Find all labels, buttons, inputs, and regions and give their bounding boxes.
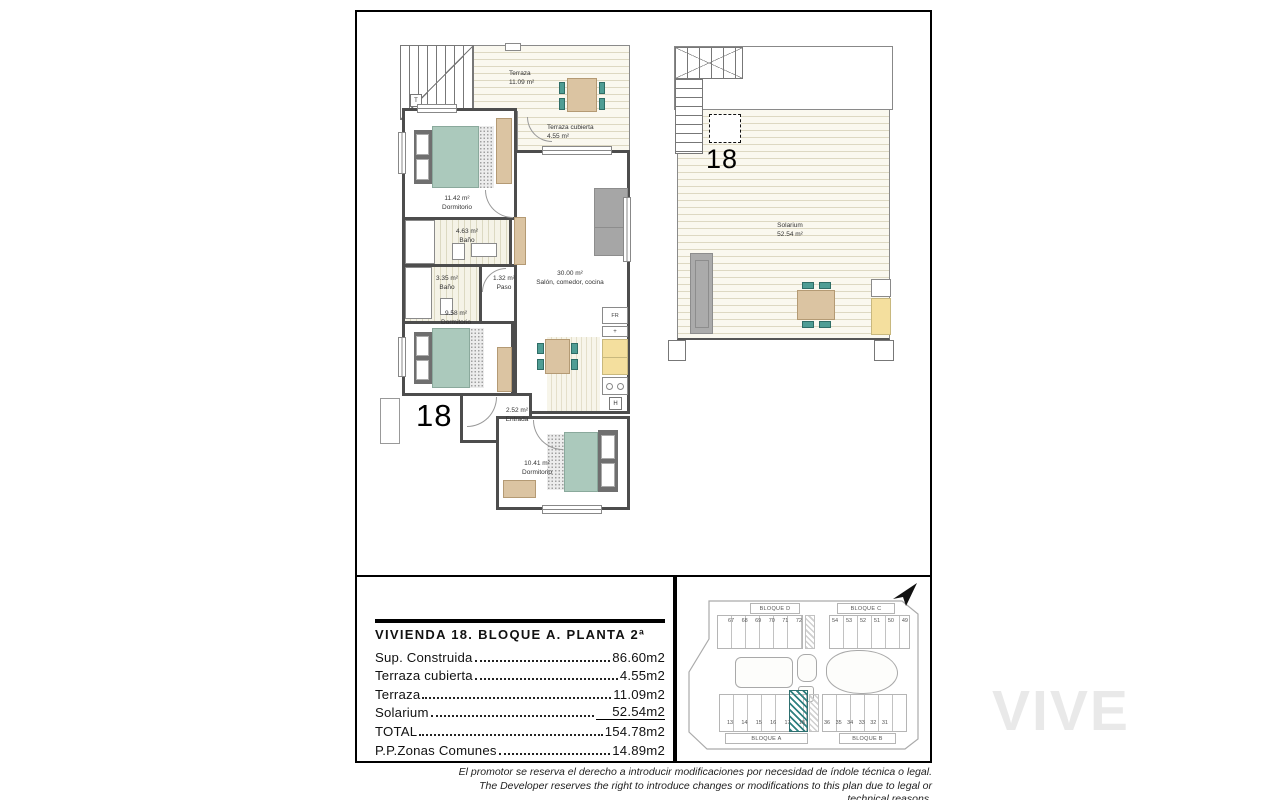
room-label-entrada: 2.52 m² Entrada bbox=[506, 407, 529, 425]
dining-chair bbox=[571, 343, 578, 354]
pillow bbox=[416, 159, 429, 180]
row-label: Solarium bbox=[375, 705, 429, 720]
room-label-dormitorio-1: 11.42 m² Dormitorio bbox=[442, 195, 472, 213]
unit-number: 49 bbox=[902, 618, 908, 624]
kitchen-sink bbox=[602, 377, 628, 395]
window bbox=[398, 132, 406, 174]
plan-sheet: T bbox=[0, 0, 1280, 800]
dot-leader bbox=[419, 734, 602, 736]
unit-number: 17 bbox=[785, 720, 791, 726]
unit-number: 51 bbox=[874, 618, 880, 624]
stair-opening-dashed bbox=[709, 114, 741, 143]
room-area: 4.55 m² bbox=[547, 133, 594, 142]
unit-number: 54 bbox=[832, 618, 838, 624]
entry-porch bbox=[380, 398, 400, 444]
bed bbox=[432, 126, 479, 188]
summary-row: P.P.Zonas Comunes 14.89m2 bbox=[375, 739, 665, 758]
summary-row: Sup. Construida 86.60m2 bbox=[375, 646, 665, 665]
room-label-dormitorio-2: 9.58 m² Dormitorio bbox=[441, 310, 471, 328]
unit-number: 71 bbox=[782, 618, 788, 624]
housing-strip-b bbox=[822, 694, 907, 732]
unit-number: 68 bbox=[742, 618, 748, 624]
block-name: BLOQUE B bbox=[852, 736, 883, 742]
bed bbox=[564, 432, 598, 492]
brand-watermark: VIVE bbox=[992, 678, 1130, 744]
toilet bbox=[452, 243, 465, 260]
row-label: P.P.Zonas Comunes bbox=[375, 743, 497, 758]
row-label: Sup. Construida bbox=[375, 650, 473, 665]
room-name: Solarium bbox=[777, 222, 803, 231]
solarium-chair bbox=[819, 282, 831, 289]
room-name: Dormitorio bbox=[522, 469, 552, 478]
shower bbox=[405, 220, 435, 264]
dot-leader bbox=[499, 753, 611, 755]
block-label-d: BLOQUE D bbox=[750, 603, 800, 614]
pillow bbox=[601, 463, 615, 487]
wardrobe bbox=[496, 118, 512, 184]
block-label-c: BLOQUE C bbox=[837, 603, 895, 614]
solarium-chair bbox=[819, 321, 831, 328]
footing bbox=[668, 340, 686, 361]
row-value: 154.78m2 bbox=[605, 724, 665, 739]
bed bbox=[432, 328, 470, 388]
window bbox=[542, 505, 602, 514]
fridge-label: FR bbox=[611, 313, 618, 319]
bed-runner bbox=[479, 126, 494, 188]
walkway bbox=[805, 615, 815, 649]
sink-bowl bbox=[617, 383, 624, 390]
row-value: 52.54m2 bbox=[596, 704, 665, 720]
terrace-chair bbox=[559, 98, 565, 110]
unit-numbers-b: 36 35 34 33 32 31 bbox=[824, 720, 888, 726]
summary-row: Terraza 11.09m2 bbox=[375, 683, 665, 702]
row-value: 86.60m2 bbox=[612, 650, 665, 665]
room-label-terraza-cubierta: Terraza cubierta 4.55 m² bbox=[547, 124, 594, 142]
room-area: 3.35 m² bbox=[436, 275, 458, 284]
wardrobe bbox=[497, 347, 512, 392]
dot-leader bbox=[431, 715, 595, 717]
summary-panel: VIVIENDA 18. BLOQUE A. PLANTA 2ª Sup. Co… bbox=[355, 575, 675, 763]
room-label-terraza: Terraza 11.09 m² bbox=[509, 70, 534, 88]
title-rule bbox=[375, 619, 665, 623]
unit-number: 67 bbox=[728, 618, 734, 624]
room-label-paso: 1.32 m² Paso bbox=[493, 275, 515, 293]
room-area: 11.09 m² bbox=[509, 79, 534, 88]
floor-plans-panel: T bbox=[355, 10, 932, 577]
dot-leader bbox=[422, 697, 611, 699]
unit-numbers-d: 67 68 69 70 71 72 bbox=[728, 618, 802, 624]
unit-number: 34 bbox=[847, 720, 853, 726]
bed-headboard bbox=[598, 430, 618, 492]
room-name: Entrada bbox=[506, 416, 529, 425]
solarium-chair bbox=[802, 321, 814, 328]
site-plan-panel: BLOQUE D BLOQUE C 67 68 69 70 71 72 54 5… bbox=[675, 575, 932, 763]
room-area: 2.52 m² bbox=[506, 407, 529, 416]
room-name: Paso bbox=[493, 284, 515, 293]
unit-number: 35 bbox=[836, 720, 842, 726]
row-value: 4.55m2 bbox=[620, 668, 665, 683]
room-area: 30.00 m² bbox=[536, 270, 604, 279]
kitchen-cabinet bbox=[602, 339, 628, 375]
disclaimer-line-es: El promotor se reserva el derecho a intr… bbox=[455, 766, 932, 780]
row-value: 14.89m2 bbox=[612, 743, 665, 758]
room-area: 10.41 m² bbox=[522, 460, 552, 469]
room-area: 11.42 m² bbox=[442, 195, 472, 204]
footing bbox=[874, 340, 894, 361]
block-name: BLOQUE D bbox=[760, 606, 791, 612]
room-name: Salón, comedor, cocina bbox=[536, 279, 604, 288]
row-label: Terraza bbox=[375, 687, 420, 702]
summary-row: TOTAL 154.78m2 bbox=[375, 720, 665, 739]
solarium-chair bbox=[802, 282, 814, 289]
pillow bbox=[416, 336, 429, 356]
summary-row: Solarium 52.54m2 bbox=[375, 702, 665, 721]
unit-number: 36 bbox=[824, 720, 830, 726]
block-name: BLOQUE C bbox=[851, 606, 882, 612]
room-area: 52.54 m² bbox=[777, 231, 803, 240]
kitchen-counter: + bbox=[602, 326, 628, 337]
dining-chair bbox=[537, 343, 544, 354]
room-area: 1.32 m² bbox=[493, 275, 515, 284]
room-label-solarium: Solarium 52.54 m² bbox=[777, 222, 803, 240]
block-label-b: BLOQUE B bbox=[839, 733, 896, 744]
unit-number: 53 bbox=[846, 618, 852, 624]
solarium-stair-run bbox=[675, 79, 703, 154]
unit-number: 14 bbox=[741, 720, 747, 726]
solarium-cabinet bbox=[871, 298, 891, 335]
unit-number: 18 bbox=[799, 720, 805, 726]
unit-number: 32 bbox=[870, 720, 876, 726]
bed-headboard bbox=[414, 130, 432, 184]
water-heater-label: H bbox=[613, 401, 617, 407]
water-heater: H bbox=[609, 397, 622, 410]
summary-row: Terraza cubierta 4.55m2 bbox=[375, 665, 665, 684]
unit-number: 31 bbox=[882, 720, 888, 726]
summary-title: VIVIENDA 18. BLOQUE A. PLANTA 2ª bbox=[375, 627, 645, 642]
cabinet-divider bbox=[603, 357, 628, 358]
room-area: 9.58 m² bbox=[441, 310, 471, 319]
room-name: Baño bbox=[436, 284, 458, 293]
pillow bbox=[416, 360, 429, 380]
unit-number: 52 bbox=[860, 618, 866, 624]
north-arrow-icon bbox=[893, 583, 919, 607]
shower bbox=[405, 267, 432, 319]
unit-number: 15 bbox=[756, 720, 762, 726]
terrace-chair bbox=[559, 82, 565, 94]
room-name: Terraza bbox=[509, 70, 534, 79]
room-area: 4.63 m² bbox=[456, 228, 478, 237]
unit-number-main: 18 bbox=[416, 398, 452, 434]
row-label: Terraza cubierta bbox=[375, 668, 473, 683]
block-name: BLOQUE A bbox=[751, 736, 781, 742]
unit-number: 13 bbox=[727, 720, 733, 726]
room-name: Dormitorio bbox=[442, 204, 472, 213]
unit-number: 70 bbox=[769, 618, 775, 624]
bed-runner bbox=[470, 328, 484, 388]
cabinet bbox=[514, 217, 526, 265]
room-name: Terraza cubierta bbox=[547, 124, 594, 133]
terrace-notch bbox=[505, 43, 521, 51]
room-label-dormitorio-3: 10.41 m² Dormitorio bbox=[522, 460, 552, 478]
window bbox=[417, 104, 457, 113]
window bbox=[542, 146, 612, 155]
stair-tag-label: T bbox=[414, 98, 418, 104]
lounger-inner bbox=[695, 260, 709, 328]
walkway bbox=[809, 694, 819, 732]
room-label-salon: 30.00 m² Salón, comedor, cocina bbox=[536, 270, 604, 288]
row-label: TOTAL bbox=[375, 724, 417, 739]
solarium-stair-winder bbox=[675, 47, 743, 79]
row-value: 11.09m2 bbox=[613, 687, 665, 702]
bed-headboard bbox=[414, 332, 432, 384]
terrace-table bbox=[567, 78, 597, 112]
room-label-bano-1: 4.63 m² Baño bbox=[456, 228, 478, 246]
pillow bbox=[601, 435, 615, 459]
window bbox=[398, 337, 406, 377]
room-name: Baño bbox=[456, 237, 478, 246]
unit-number: 72 bbox=[796, 618, 802, 624]
wardrobe bbox=[503, 480, 536, 498]
dot-leader bbox=[475, 678, 618, 680]
unit-numbers-a: 13 14 15 16 17 18 bbox=[727, 720, 805, 726]
pool bbox=[735, 657, 793, 688]
unit-number: 33 bbox=[859, 720, 865, 726]
disclaimer-line-en: The Developer reserves the right to intr… bbox=[455, 780, 932, 800]
pillow bbox=[416, 134, 429, 155]
unit-numbers-c: 54 53 52 51 50 49 bbox=[832, 618, 908, 624]
dot-leader bbox=[475, 660, 611, 662]
solarium-table bbox=[797, 290, 835, 320]
sun-lounger bbox=[690, 253, 713, 334]
unit-number: 69 bbox=[755, 618, 761, 624]
disclaimer: El promotor se reserva el derecho a intr… bbox=[455, 766, 932, 800]
counter-label: + bbox=[613, 329, 617, 335]
room-name: Dormitorio bbox=[441, 319, 471, 328]
pool bbox=[797, 654, 817, 682]
summary-rows: Sup. Construida 86.60m2 Terraza cubierta… bbox=[375, 646, 665, 758]
dining-table bbox=[545, 339, 570, 374]
room-label-bano-2: 3.35 m² Baño bbox=[436, 275, 458, 293]
solarium-sink bbox=[871, 279, 891, 297]
pool bbox=[826, 650, 898, 694]
dining-chair bbox=[571, 359, 578, 370]
unit-number: 50 bbox=[888, 618, 894, 624]
unit-number-solarium: 18 bbox=[706, 144, 738, 175]
sink-bowl bbox=[606, 383, 613, 390]
unit-number: 16 bbox=[770, 720, 776, 726]
terrace-chair bbox=[599, 98, 605, 110]
block-label-a: BLOQUE A bbox=[725, 733, 808, 744]
fridge: FR bbox=[602, 307, 628, 324]
dining-chair bbox=[537, 359, 544, 370]
window bbox=[623, 197, 631, 262]
terrace-chair bbox=[599, 82, 605, 94]
